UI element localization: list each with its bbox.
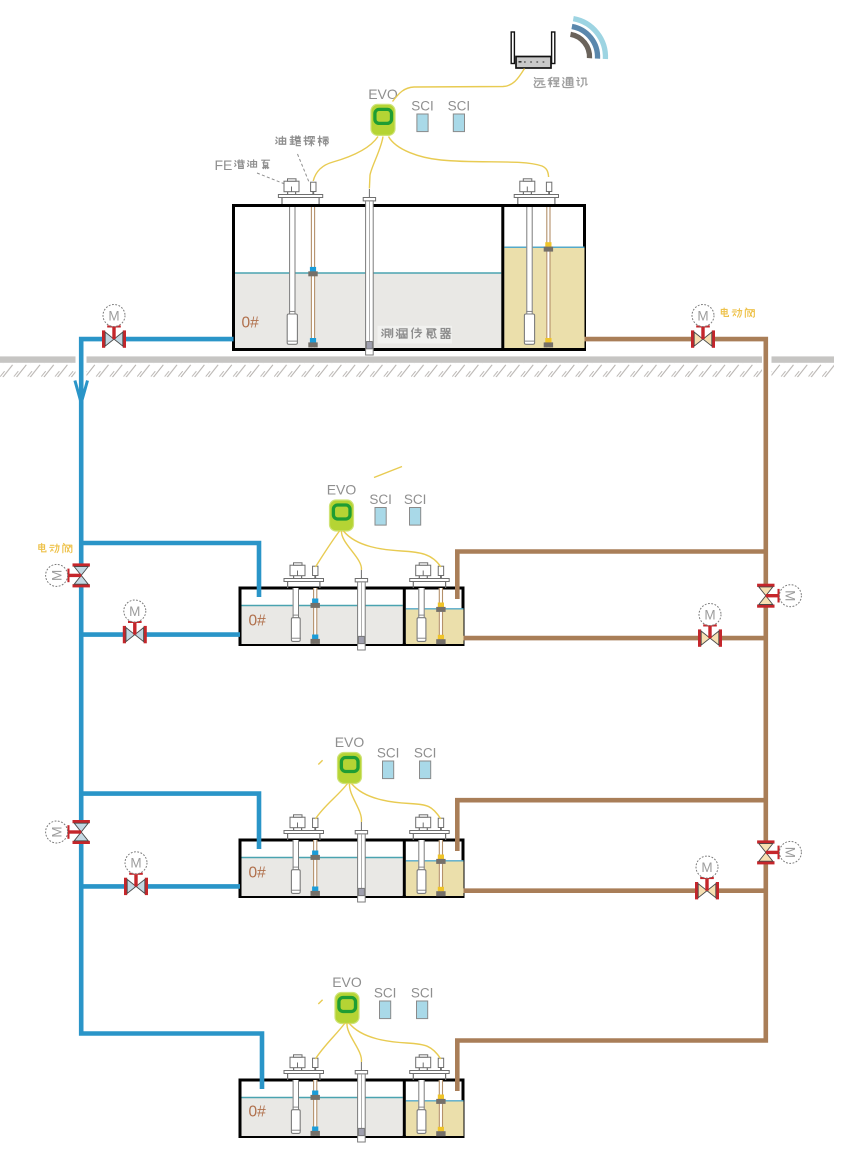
svg-text:SCI: SCI	[374, 986, 397, 1001]
svg-text:SCI: SCI	[448, 99, 471, 114]
svg-text:M: M	[783, 590, 798, 601]
svg-text:SCI: SCI	[411, 986, 434, 1001]
svg-text:M: M	[130, 856, 141, 871]
svg-text:SCI: SCI	[414, 746, 437, 761]
svg-text:EVO: EVO	[335, 734, 365, 750]
svg-text:M: M	[704, 607, 715, 622]
svg-text:SCI: SCI	[369, 492, 392, 507]
svg-text:EVO: EVO	[332, 974, 362, 990]
svg-text:M: M	[783, 847, 798, 858]
svg-text:M: M	[49, 826, 64, 837]
svg-text:0#: 0#	[249, 1104, 267, 1121]
svg-text:M: M	[697, 308, 708, 323]
svg-text:M: M	[49, 570, 64, 581]
svg-text:SCI: SCI	[377, 746, 400, 761]
svg-text:M: M	[701, 860, 712, 875]
svg-text:0#: 0#	[249, 613, 267, 630]
svg-text:0#: 0#	[249, 865, 267, 882]
svg-text:M: M	[108, 308, 119, 323]
svg-text:EVO: EVO	[327, 482, 357, 498]
svg-text:SCI: SCI	[404, 492, 427, 507]
svg-text:M: M	[129, 604, 140, 619]
svg-text:SCI: SCI	[411, 99, 434, 114]
svg-text:FE: FE	[215, 157, 233, 173]
svg-text:0#: 0#	[242, 315, 260, 332]
